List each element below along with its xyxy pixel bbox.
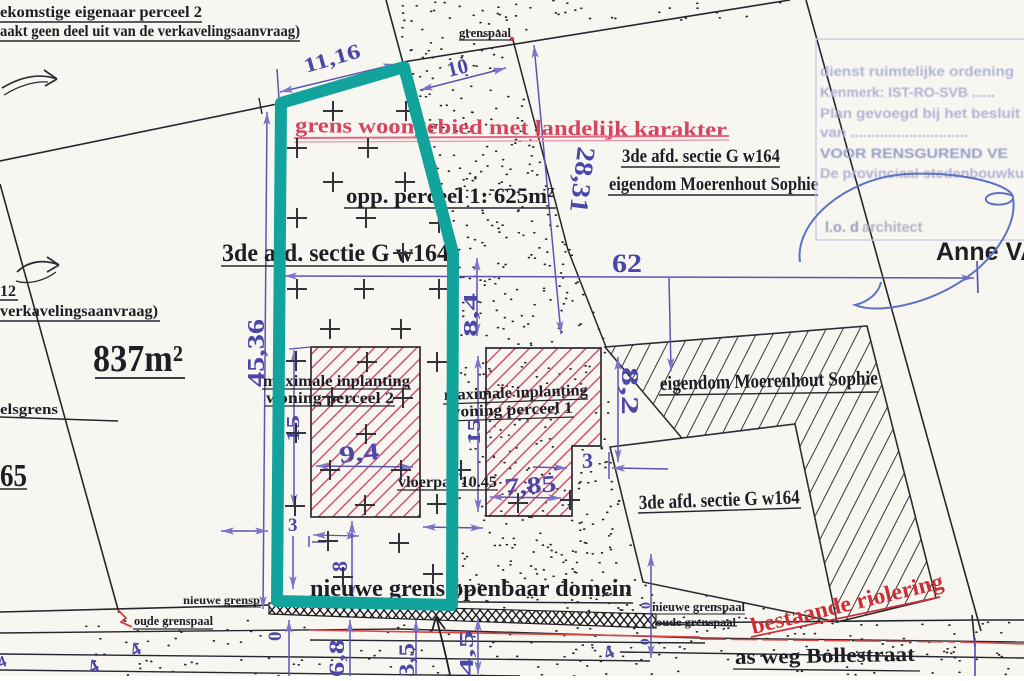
svg-text:grenspaal: grenspaal [459,26,512,40]
svg-text:15: 15 [283,415,303,442]
svg-text:3: 3 [582,448,593,473]
svg-text:opp. perceel 1: 625m²: opp. perceel 1: 625m² [346,183,554,208]
svg-text:as weg Bollestraat: as weg Bollestraat [735,642,915,669]
svg-text:Anne VAN: Anne VAN [936,238,1024,266]
svg-text:8,4: 8,4 [460,293,482,337]
svg-text:aakt geen deel uit van de verk: aakt geen deel uit van de verkavelingsaa… [0,23,300,40]
svg-text:oude grenspaal: oude grenspaal [134,613,213,628]
svg-text:nieuwe grenspaal: nieuwe grenspaal [652,600,746,614]
svg-text:9,4: 9,4 [338,439,380,469]
svg-text:elsgrens: elsgrens [0,402,58,418]
svg-text:eigendom Moerenhout Sophie: eigendom Moerenhout Sophie [609,174,818,195]
svg-text:12: 12 [0,283,16,300]
svg-text:ekomstige eigenaar perceel 2: ekomstige eigenaar perceel 2 [0,4,202,21]
svg-text:8,2: 8,2 [616,367,642,415]
svg-text:8: 8 [327,561,352,572]
svg-text:3de afd. sectie G w164: 3de afd. sectie G w164 [622,146,780,167]
svg-text:maximale inplanting: maximale inplanting [263,373,410,390]
svg-text:4,5: 4,5 [456,630,478,676]
svg-text:62: 62 [612,249,642,278]
svg-text:Kenmerk: IST-RO-SVB ......: Kenmerk: IST-RO-SVB ...... [820,85,995,100]
svg-text:65: 65 [0,457,27,493]
svg-text:Plan gevoegd bij het besluit: Plan gevoegd bij het besluit [820,106,1021,121]
svg-text:837m²: 837m² [93,338,183,380]
svg-text:6,8: 6,8 [324,639,349,676]
svg-text:15: 15 [464,418,484,445]
svg-text:45,36: 45,36 [244,319,270,387]
svg-text:3: 3 [288,515,298,536]
svg-text:3,5: 3,5 [394,643,419,676]
svg-text:l.o. d: l.o. d [825,220,859,236]
svg-text:0: 0 [637,639,652,646]
svg-text:architect: architect [862,220,923,236]
svg-text:VOOR RENSGUREND VE: VOOR RENSGUREND VE [820,145,1008,161]
svg-text:dienst ruimtelijke ordening: dienst ruimtelijke ordening [820,64,1014,79]
svg-text:nieuwe grensp: nieuwe grensp [183,593,260,607]
svg-text:7,85: 7,85 [504,471,558,501]
svg-text:oude grenspaal: oude grenspaal [656,615,737,629]
svg-text:3de afd. sectie G w164: 3de afd. sectie G w164 [222,240,449,267]
svg-text:woning perceel 2: woning perceel 2 [266,390,394,407]
svg-text:van ..........................: van ............................ [820,125,968,140]
svg-text:0: 0 [639,602,654,609]
svg-text:0: 0 [265,632,286,642]
svg-text:verkavelingsaanvraag): verkavelingsaanvraag) [0,303,158,320]
